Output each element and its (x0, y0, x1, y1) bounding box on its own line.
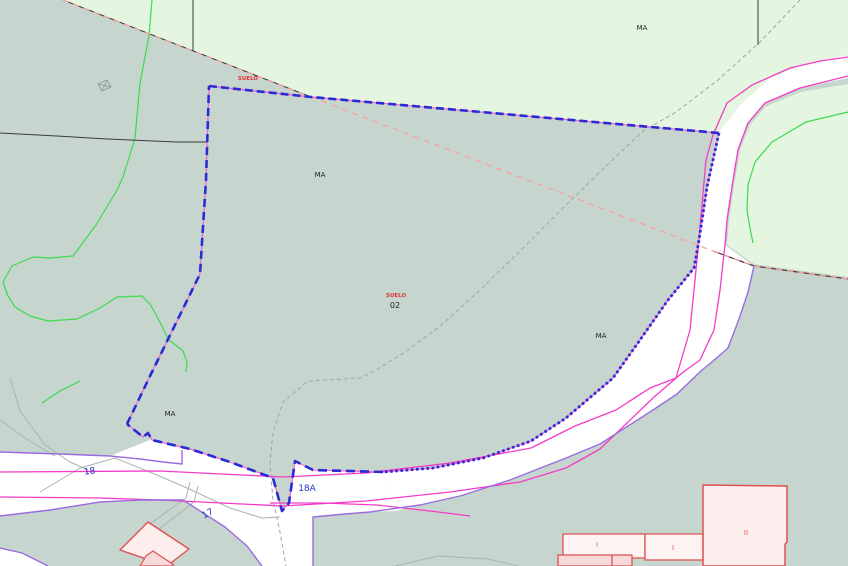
label-ma-woodland: MA (637, 24, 648, 32)
label-road-18: 18 (83, 466, 96, 478)
label-suelo-north: SUELO (238, 76, 258, 82)
label-building-ii: II (744, 529, 748, 537)
cadastral-map-viewport[interactable]: SUELOMAMASUELO02MAMA1818A17IIII (0, 0, 848, 566)
label-parcel-number-02: 02 (390, 301, 400, 310)
label-building-i-b: I (672, 544, 674, 552)
cadastral-map-canvas[interactable]: SUELOMAMASUELO02MAMA1818A17IIII (0, 0, 848, 566)
label-road-18a: 18A (298, 484, 316, 494)
label-building-i-a: I (596, 541, 598, 549)
label-ma-parcel-east: MA (596, 332, 607, 340)
label-suelo-center: SUELO (386, 293, 406, 299)
building-row-front (558, 555, 632, 566)
label-ma-parcel-south: MA (165, 410, 176, 418)
label-ma-parcel-west: MA (315, 171, 326, 179)
building-two-storey (703, 485, 787, 566)
